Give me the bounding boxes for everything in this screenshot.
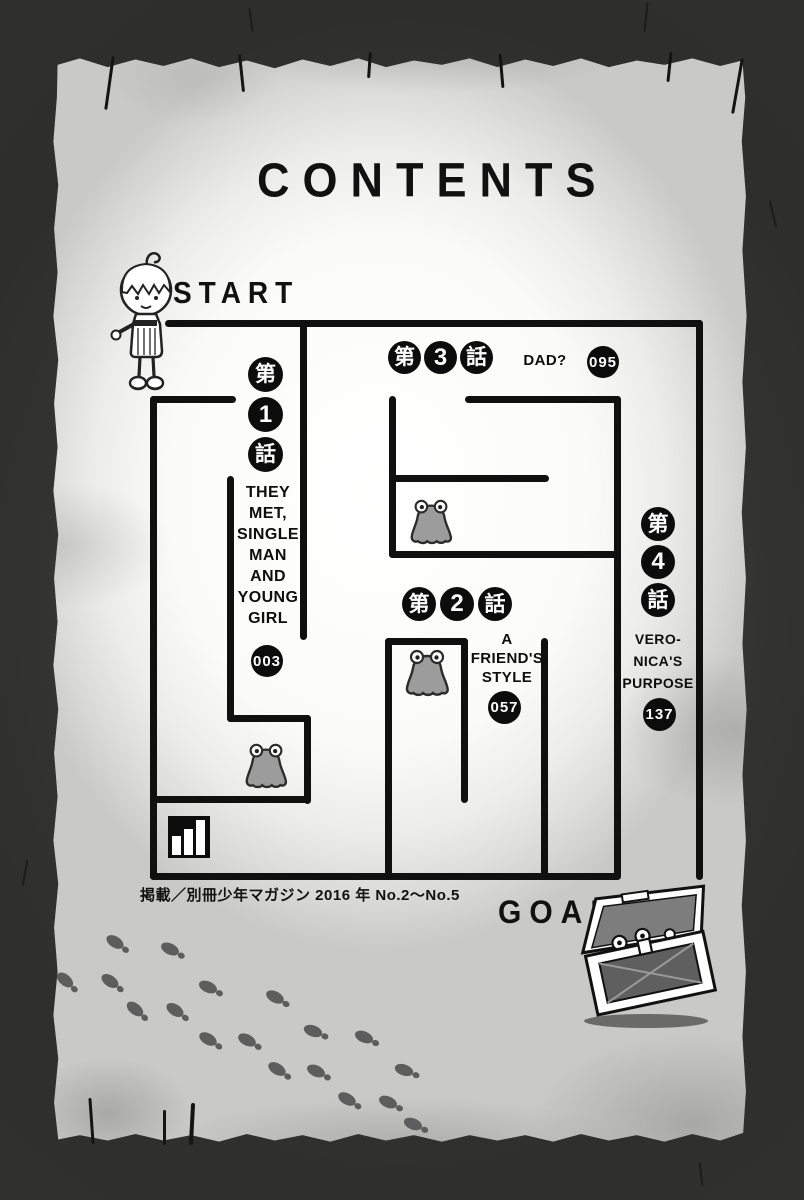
maze-wall: [385, 638, 392, 880]
maze-wall: [465, 396, 621, 403]
maze-wall: [389, 475, 549, 482]
bar: [172, 836, 181, 855]
crack: [643, 2, 648, 32]
chapter-3-badge-wa: 話: [460, 341, 493, 374]
start-label: START: [173, 276, 299, 311]
chapter-1-title: THEY MET, SINGLE MAN AND YOUNG GIRL: [216, 482, 320, 629]
start-character: [108, 250, 186, 400]
chapter-1-badge-number: 1: [248, 397, 283, 432]
chapter-4-badge-dai: 第: [641, 507, 675, 541]
slime-icon: [401, 648, 453, 698]
maze-wall-left-outer: [150, 396, 157, 880]
bar: [184, 829, 193, 855]
crack: [769, 200, 778, 228]
chapter-1-page-badge: 003: [251, 645, 283, 677]
maze-wall: [389, 551, 621, 558]
maze-wall: [227, 715, 311, 722]
chapter-2-number-badge: 第 2 話: [402, 587, 512, 621]
treasure-chest-icon: [558, 882, 733, 1030]
chapter-3-page-badge: 095: [587, 346, 619, 378]
maze-wall-top: [165, 320, 703, 327]
bar: [196, 820, 205, 855]
crack: [22, 860, 28, 886]
chapter-4-badge-wa: 話: [641, 583, 675, 617]
footprints-trail: [50, 912, 450, 1157]
bar-chart-icon: [168, 816, 210, 858]
manga-contents-page: CONTENTS START GOAL 第 1 話 THEY MET, SING…: [0, 0, 804, 1200]
maze-wall-right-outer: [696, 320, 703, 880]
crack: [248, 8, 253, 32]
maze-wall: [385, 638, 468, 645]
chapter-2-badge-number: 2: [440, 587, 474, 621]
chapter-3-badge-number: 3: [424, 341, 457, 374]
slime-icon: [406, 497, 456, 547]
chapter-2-page-badge: 057: [488, 691, 521, 724]
chapter-2-badge-dai: 第: [402, 587, 436, 621]
crack: [699, 1162, 704, 1186]
chapter-4-title: VERO- NICA'S PURPOSE: [610, 628, 706, 694]
chapter-3-number-badge: 第 3 話: [388, 341, 493, 374]
chapter-1-number-badge: 第 1 話: [248, 357, 283, 472]
page-title: CONTENTS: [257, 152, 609, 208]
slime-icon: [241, 740, 291, 792]
chapter-4-number-badge: 第 4 話: [641, 507, 675, 617]
chapter-2-badge-wa: 話: [478, 587, 512, 621]
maze-wall: [150, 796, 311, 803]
footer-note: 掲載／別冊少年マガジン 2016 年 No.2～No.5: [140, 884, 460, 905]
chapter-4-badge-number: 4: [641, 545, 675, 579]
chapter-1-badge-dai: 第: [248, 357, 283, 392]
chapter-1-badge-wa: 話: [248, 437, 283, 472]
maze-wall: [304, 715, 311, 804]
chapter-4-page-badge: 137: [643, 698, 676, 731]
chapter-3-title: DAD?: [510, 352, 580, 370]
chapter-3-badge-dai: 第: [388, 341, 421, 374]
chapter-2-title: A FRIEND'S STYLE: [460, 630, 554, 687]
